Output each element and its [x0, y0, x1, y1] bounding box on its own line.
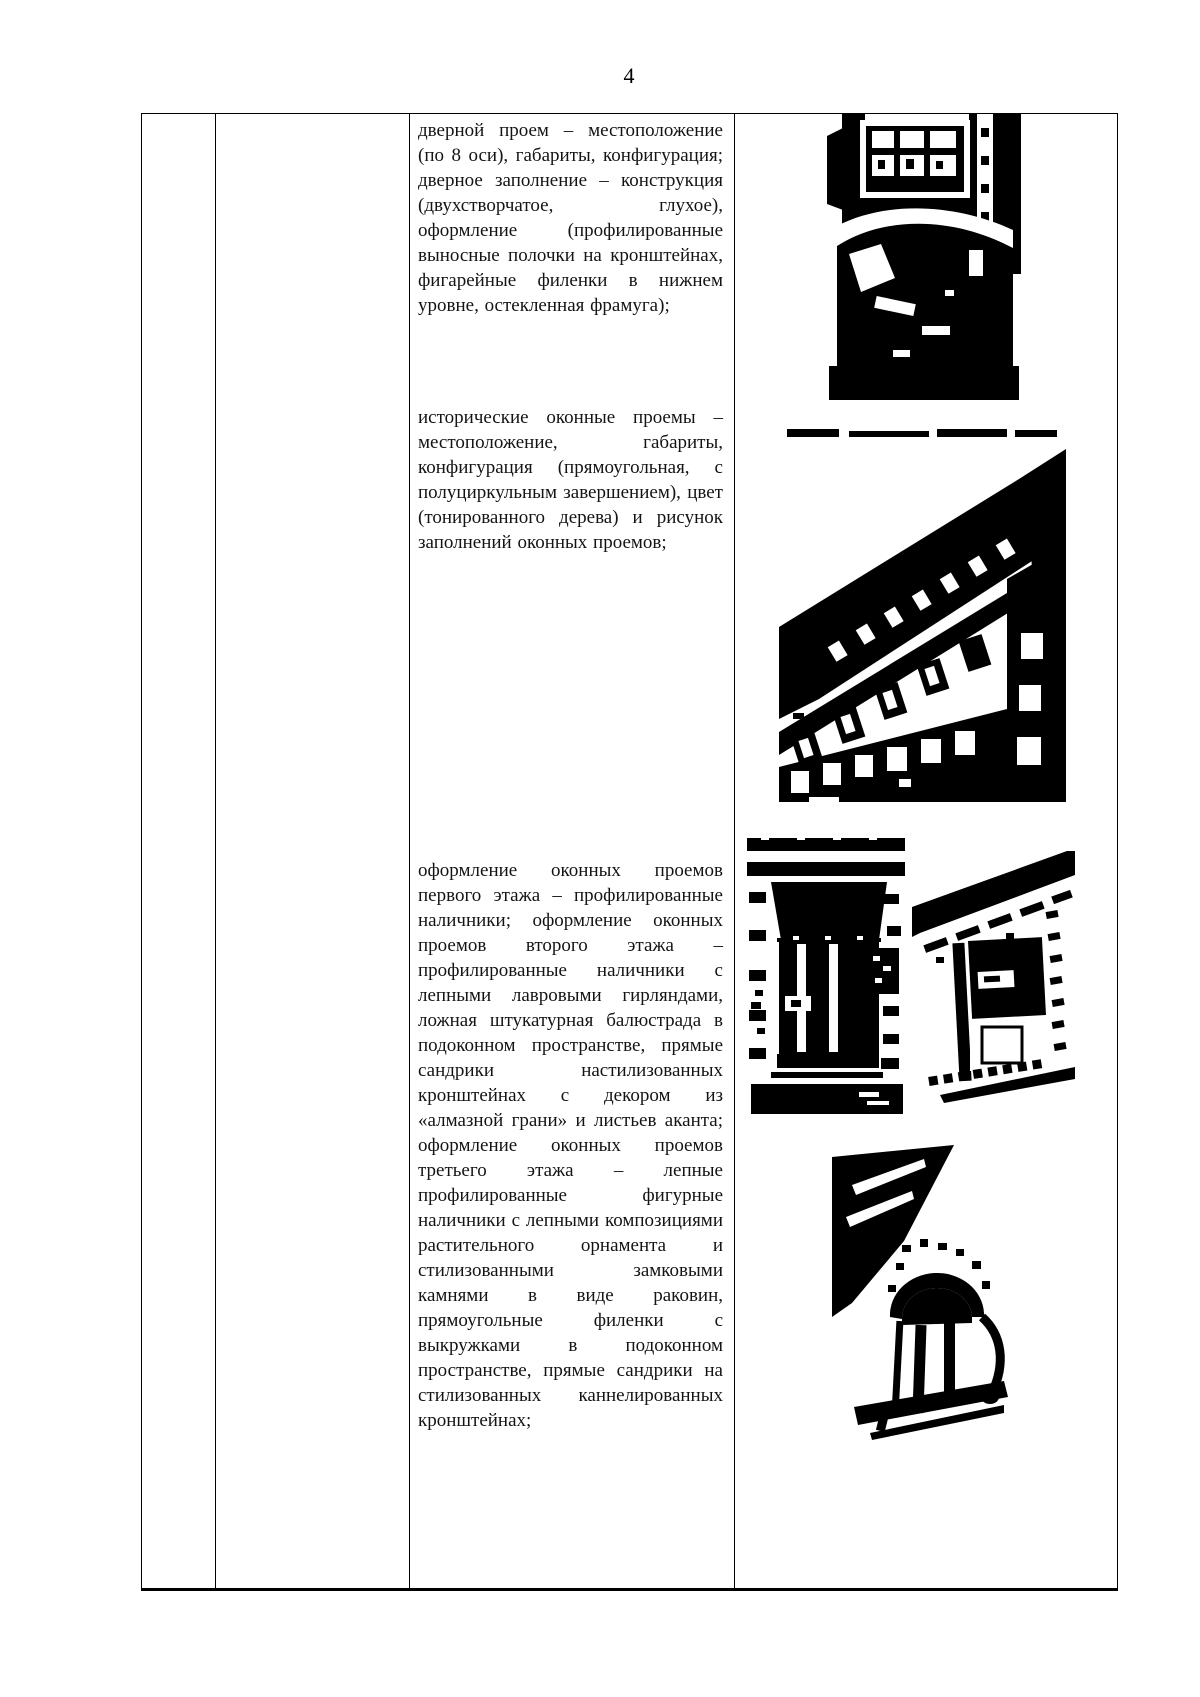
window-second-floor-photo-graphic: [912, 845, 1075, 1103]
table-col-number-cell: [142, 114, 216, 1588]
window-third-floor-photo-graphic: [832, 1145, 1013, 1443]
window-first-floor-photo: [741, 830, 913, 1115]
facade-photo: [779, 427, 1066, 802]
window-second-floor-photo: [912, 845, 1075, 1103]
document-table: дверной проем – местоположение (по 8 оси…: [141, 113, 1118, 1591]
door-portal-photo-graphic: [827, 114, 1021, 400]
facade-photo-graphic: [779, 427, 1066, 802]
text-block-window-decor: оформление оконных проемов первого этажа…: [418, 858, 723, 1433]
table-col-photos-cell: [735, 114, 1117, 1588]
window-third-floor-photo: [832, 1145, 1013, 1443]
table-col-description-cell: дверной проем – местоположение (по 8 оси…: [410, 114, 735, 1588]
page-number: 4: [0, 64, 1200, 88]
text-block-door-opening: дверной проем – местоположение (по 8 оси…: [418, 118, 723, 318]
window-first-floor-photo-graphic: [741, 830, 913, 1115]
text-block-window-openings: исторические оконные проемы – местополож…: [418, 405, 723, 555]
table-col-object-cell: [216, 114, 410, 1588]
door-portal-photo: [827, 114, 1021, 400]
document-page: 4 дверной проем – местоположение (по 8 о…: [0, 0, 1200, 1697]
